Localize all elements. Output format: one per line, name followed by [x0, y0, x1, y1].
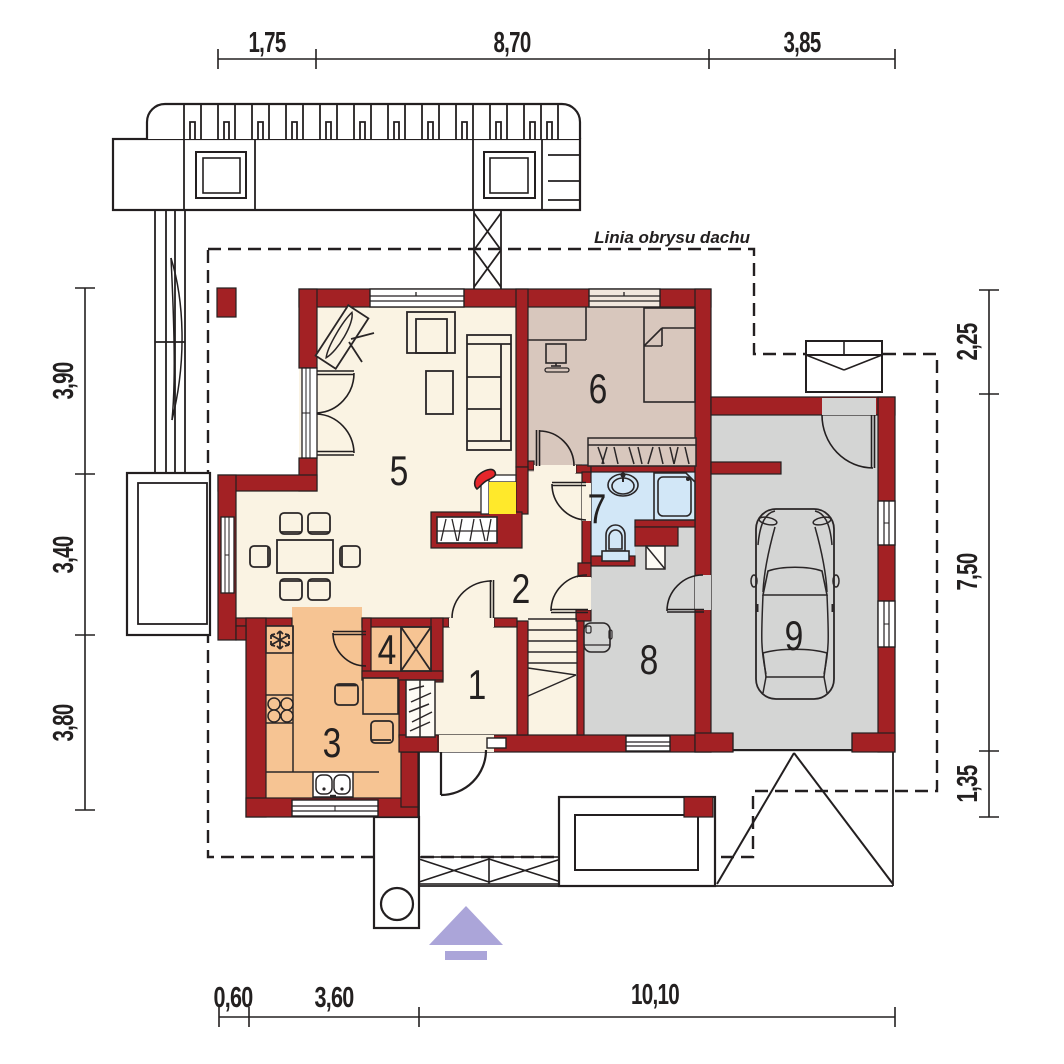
svg-text:8: 8 [640, 638, 659, 684]
svg-text:3,40: 3,40 [48, 537, 80, 574]
svg-text:9: 9 [785, 614, 804, 660]
svg-text:5: 5 [390, 449, 409, 495]
svg-text:3,85: 3,85 [784, 27, 822, 59]
svg-text:1: 1 [468, 663, 487, 709]
svg-text:0,60: 0,60 [214, 982, 253, 1014]
svg-text:4: 4 [378, 628, 397, 674]
svg-text:3,80: 3,80 [48, 705, 80, 742]
svg-text:1,75: 1,75 [249, 27, 287, 59]
svg-text:7,50: 7,50 [952, 554, 984, 591]
svg-text:7: 7 [588, 487, 607, 533]
svg-text:Linia obrysu dachu: Linia obrysu dachu [594, 228, 750, 247]
svg-text:3: 3 [323, 721, 342, 767]
svg-text:1,35: 1,35 [952, 765, 984, 803]
svg-text:3,90: 3,90 [48, 363, 80, 400]
svg-text:6: 6 [589, 367, 608, 413]
svg-text:2: 2 [512, 567, 531, 613]
svg-text:2,25: 2,25 [952, 323, 984, 361]
svg-text:10,10: 10,10 [631, 979, 679, 1011]
svg-text:3,60: 3,60 [315, 982, 354, 1014]
svg-text:8,70: 8,70 [494, 27, 531, 59]
